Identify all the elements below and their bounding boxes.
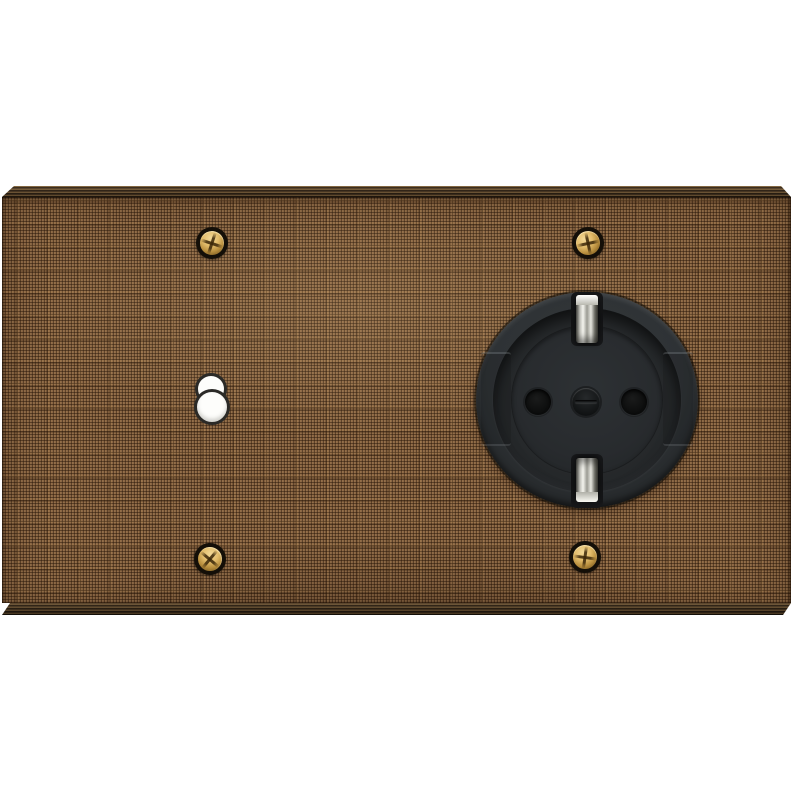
socket-center-screw	[572, 388, 600, 416]
earth-clip-top	[576, 295, 598, 343]
plate-bottom-edge	[2, 603, 791, 615]
wall-plate	[2, 186, 791, 615]
toggle-lever-hole-lower	[194, 389, 230, 425]
product-photo	[0, 0, 800, 800]
guide-notch-left	[481, 352, 511, 446]
schuko-socket	[476, 292, 698, 508]
guide-notch-right	[663, 352, 693, 446]
pin-hole-left	[525, 389, 551, 415]
pin-hole-right	[621, 389, 647, 415]
plate-top-edge	[2, 186, 791, 197]
earth-clip-bottom	[576, 458, 598, 502]
